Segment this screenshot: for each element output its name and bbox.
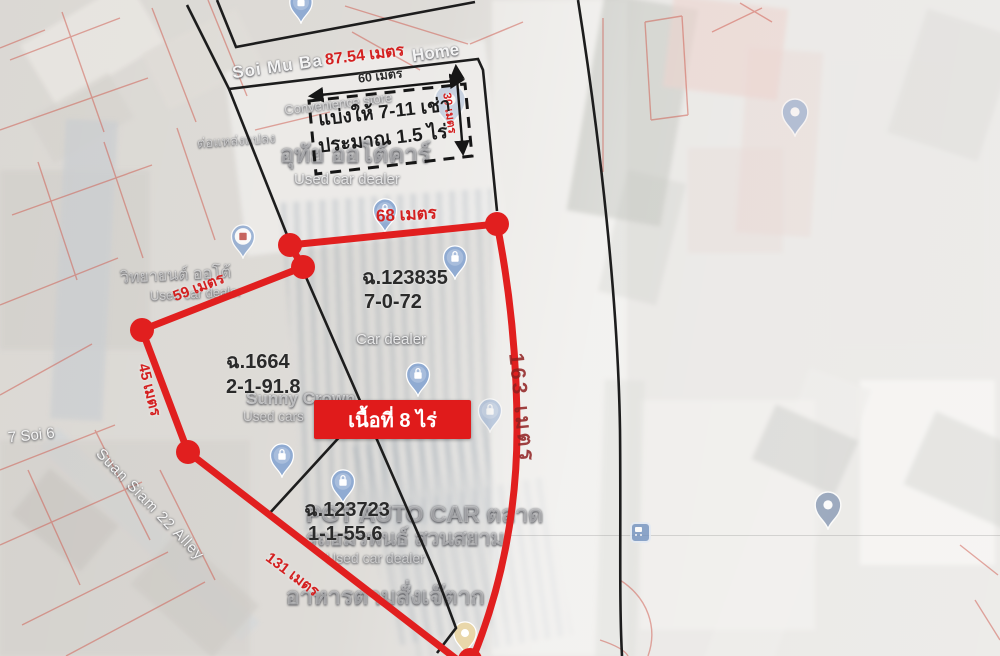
annotation-lines [0, 0, 1000, 656]
total-area-label: เนื้อที่ 8 ไร่ [348, 404, 437, 436]
parcel-size-123835: 7-0-72 [364, 292, 422, 313]
parcel-deed-123835: ฉ.123835 [362, 268, 448, 289]
measure-north-edge: 68 เมตร [376, 204, 438, 225]
annotated-satellite-map[interactable]: Soi Mu Ba Home Convenience store อุทัย อ… [0, 0, 1000, 656]
parcel-deed-1664: ฉ.1664 [226, 352, 290, 373]
parcel-deed-123723: ฉ.123723 [304, 500, 390, 521]
total-area-badge: เนื้อที่ 8 ไร่ [314, 400, 471, 439]
black-parcel-boundaries [187, 0, 622, 656]
parcel-size-1664: 2-1-91.8 [226, 377, 301, 398]
parcel-size-123723: 1-1-55.6 [308, 524, 383, 545]
